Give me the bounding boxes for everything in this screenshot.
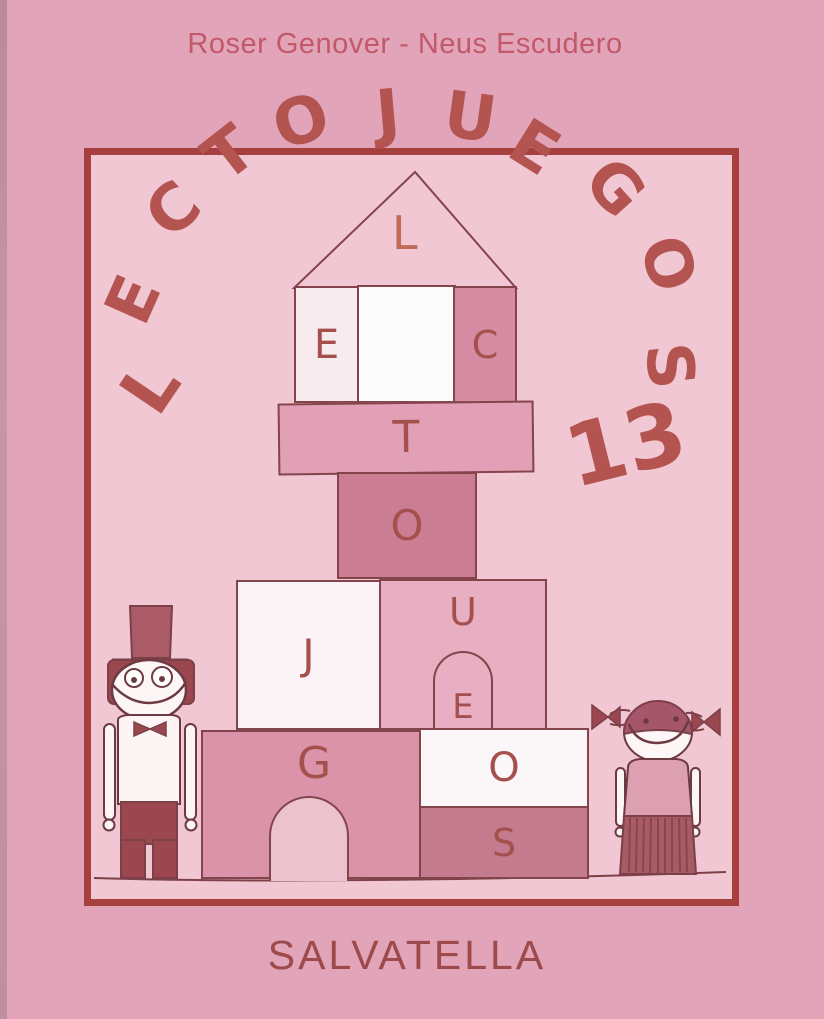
block-e-letter: E — [314, 325, 339, 365]
block-j: J — [236, 580, 381, 730]
block-o-square-letter: O — [390, 505, 423, 547]
block-s: S — [419, 806, 589, 879]
boy-character-illustration — [88, 600, 214, 882]
girl-sweater — [624, 759, 692, 816]
girl-left-eye — [643, 718, 649, 724]
block-blank-white — [357, 285, 456, 403]
boy-top-hat — [130, 606, 172, 658]
volume-number: 13 — [557, 389, 694, 501]
boy-left-hand — [104, 820, 115, 831]
girl-right-bow — [704, 709, 720, 735]
window-arch: E — [433, 651, 493, 730]
roof-letter: L — [392, 210, 418, 256]
block-g: G — [201, 730, 421, 879]
boy-right-hand — [186, 820, 197, 831]
block-o-white: O — [419, 728, 589, 808]
title-letter-j: J — [373, 81, 402, 147]
book-cover: Roser Genover - Neus Escudero L E C T O … — [0, 0, 824, 1019]
block-bar-t: T — [278, 400, 535, 475]
girl-left-bow — [592, 705, 608, 729]
block-s-letter: S — [492, 824, 516, 862]
block-c-letter: C — [472, 326, 499, 364]
title-letter-u: U — [440, 83, 500, 154]
authors-line: Roser Genover - Neus Escudero — [0, 28, 810, 61]
block-j-letter: J — [302, 634, 314, 676]
boy-left-arm — [104, 724, 115, 820]
block-ue: U E — [379, 579, 547, 730]
block-g-letter: G — [297, 742, 331, 786]
girl-right-eye — [673, 716, 679, 722]
girl-character-illustration — [582, 684, 730, 878]
door-arch — [269, 796, 349, 881]
publisher-name: SALVATELLA — [0, 932, 814, 979]
block-t-letter: T — [392, 416, 419, 460]
scan-edge-strip — [0, 0, 7, 1019]
girl-hair — [624, 701, 692, 734]
window-e-letter: E — [452, 690, 473, 724]
block-c: C — [453, 286, 517, 403]
boy-face — [112, 660, 186, 720]
block-u-letter: U — [449, 593, 477, 631]
block-e: E — [294, 286, 359, 403]
boy-pants — [121, 802, 177, 844]
block-o-square: O — [337, 472, 477, 579]
block-o-white-letter: O — [488, 748, 519, 788]
boy-right-arm — [185, 724, 196, 820]
